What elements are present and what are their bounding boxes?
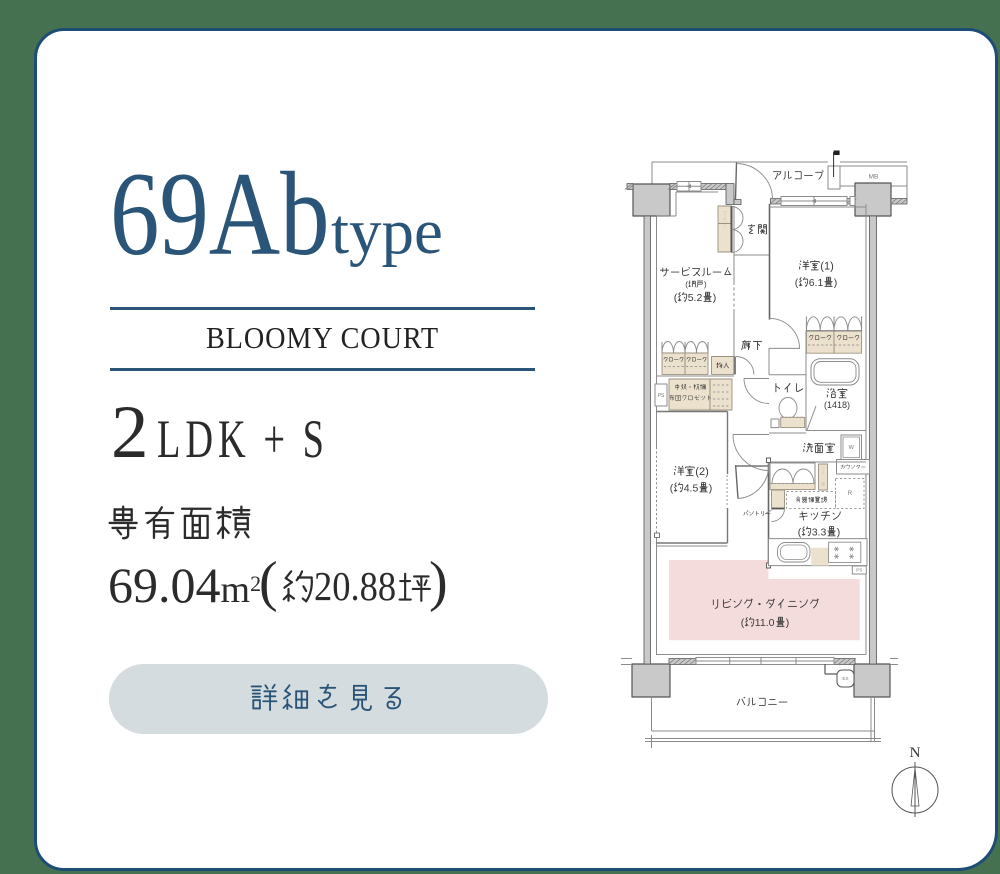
svg-text:(: ( bbox=[798, 526, 802, 538]
svg-text:(: ( bbox=[674, 292, 678, 304]
svg-text:): ) bbox=[713, 292, 717, 304]
svg-text:6.1: 6.1 bbox=[809, 277, 824, 289]
svg-text:): ) bbox=[834, 277, 838, 289]
svg-text:(2): (2) bbox=[695, 466, 708, 478]
svg-text:): ) bbox=[709, 482, 713, 494]
svg-text:): ) bbox=[837, 526, 841, 538]
svg-text:): ) bbox=[704, 280, 707, 289]
svg-text:(: ( bbox=[795, 277, 799, 289]
svg-text:(1418): (1418) bbox=[824, 400, 850, 410]
svg-text:4.5: 4.5 bbox=[684, 482, 699, 494]
svg-text:(1): (1) bbox=[820, 261, 833, 273]
svg-text:R: R bbox=[848, 491, 853, 497]
svg-text:EX: EX bbox=[842, 676, 848, 681]
svg-text:(: ( bbox=[685, 280, 688, 289]
svg-text:MB: MB bbox=[869, 173, 879, 180]
svg-text:3.3: 3.3 bbox=[812, 526, 827, 538]
svg-text:N: N bbox=[910, 745, 921, 761]
svg-text:5.2: 5.2 bbox=[688, 292, 703, 304]
svg-text:W: W bbox=[849, 445, 855, 451]
svg-text:PS: PS bbox=[856, 568, 862, 573]
svg-text:11.0: 11.0 bbox=[755, 617, 775, 629]
svg-text:PS: PS bbox=[658, 393, 665, 399]
svg-text:): ) bbox=[786, 617, 790, 629]
svg-text:(: ( bbox=[670, 482, 674, 494]
svg-text:(: ( bbox=[741, 617, 745, 629]
